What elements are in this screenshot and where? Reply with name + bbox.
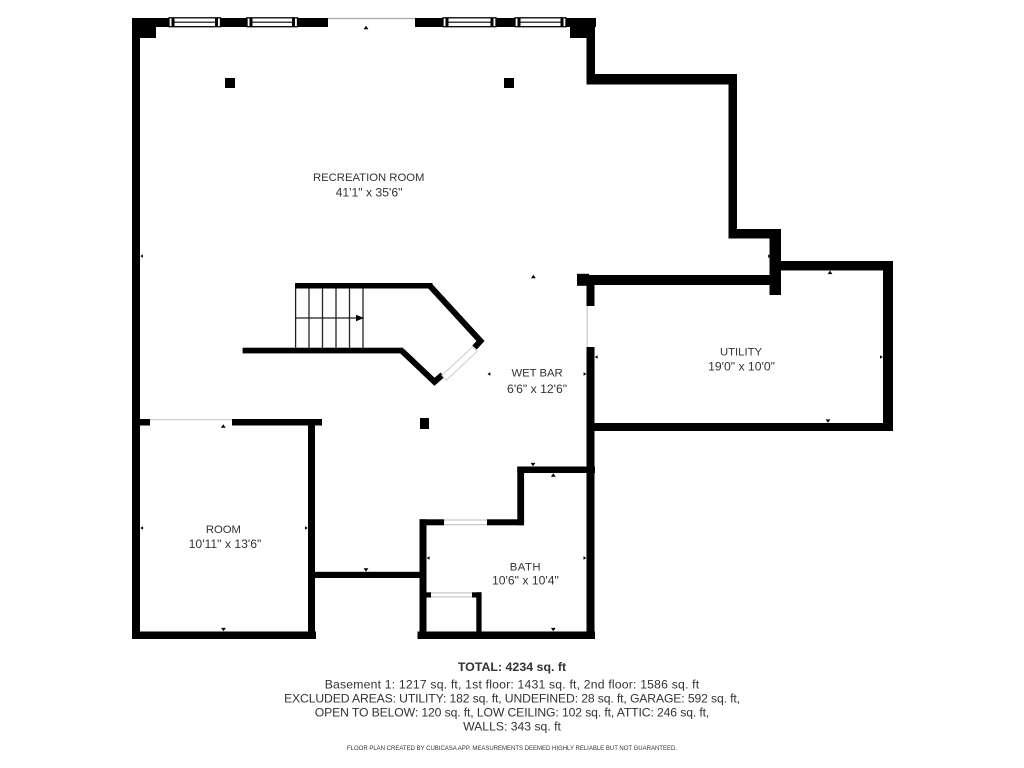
svg-text:Basement 1: 1217 sq. ft, 1st f: Basement 1: 1217 sq. ft, 1st floor: 1431… <box>325 677 700 691</box>
svg-text:TOTAL: 4234 sq. ft: TOTAL: 4234 sq. ft <box>458 660 566 674</box>
svg-text:UTILITY: UTILITY <box>720 346 763 358</box>
svg-text:OPEN TO BELOW: 120 sq. ft, LOW: OPEN TO BELOW: 120 sq. ft, LOW CEILING: … <box>315 706 709 720</box>
svg-text:10'6" x 10'4": 10'6" x 10'4" <box>492 574 559 588</box>
svg-text:EXCLUDED AREAS: UTILITY: 182 s: EXCLUDED AREAS: UTILITY: 182 sq. ft, UND… <box>284 691 740 705</box>
svg-text:19'0" x 10'0": 19'0" x 10'0" <box>708 359 775 373</box>
svg-text:6'6" x 12'6": 6'6" x 12'6" <box>507 382 567 396</box>
svg-text:ROOM: ROOM <box>206 524 241 536</box>
svg-text:10'11" x 13'6": 10'11" x 13'6" <box>189 537 262 551</box>
svg-text:RECREATION ROOM: RECREATION ROOM <box>313 172 425 184</box>
svg-text:WET BAR: WET BAR <box>511 368 562 380</box>
svg-text:BATH: BATH <box>510 561 541 573</box>
svg-text:41'1" x 35'6": 41'1" x 35'6" <box>336 185 403 199</box>
svg-text:FLOOR PLAN CREATED BY CUBICASA: FLOOR PLAN CREATED BY CUBICASA APP. MEAS… <box>347 746 677 752</box>
svg-text:WALLS: 343 sq. ft: WALLS: 343 sq. ft <box>463 720 561 734</box>
